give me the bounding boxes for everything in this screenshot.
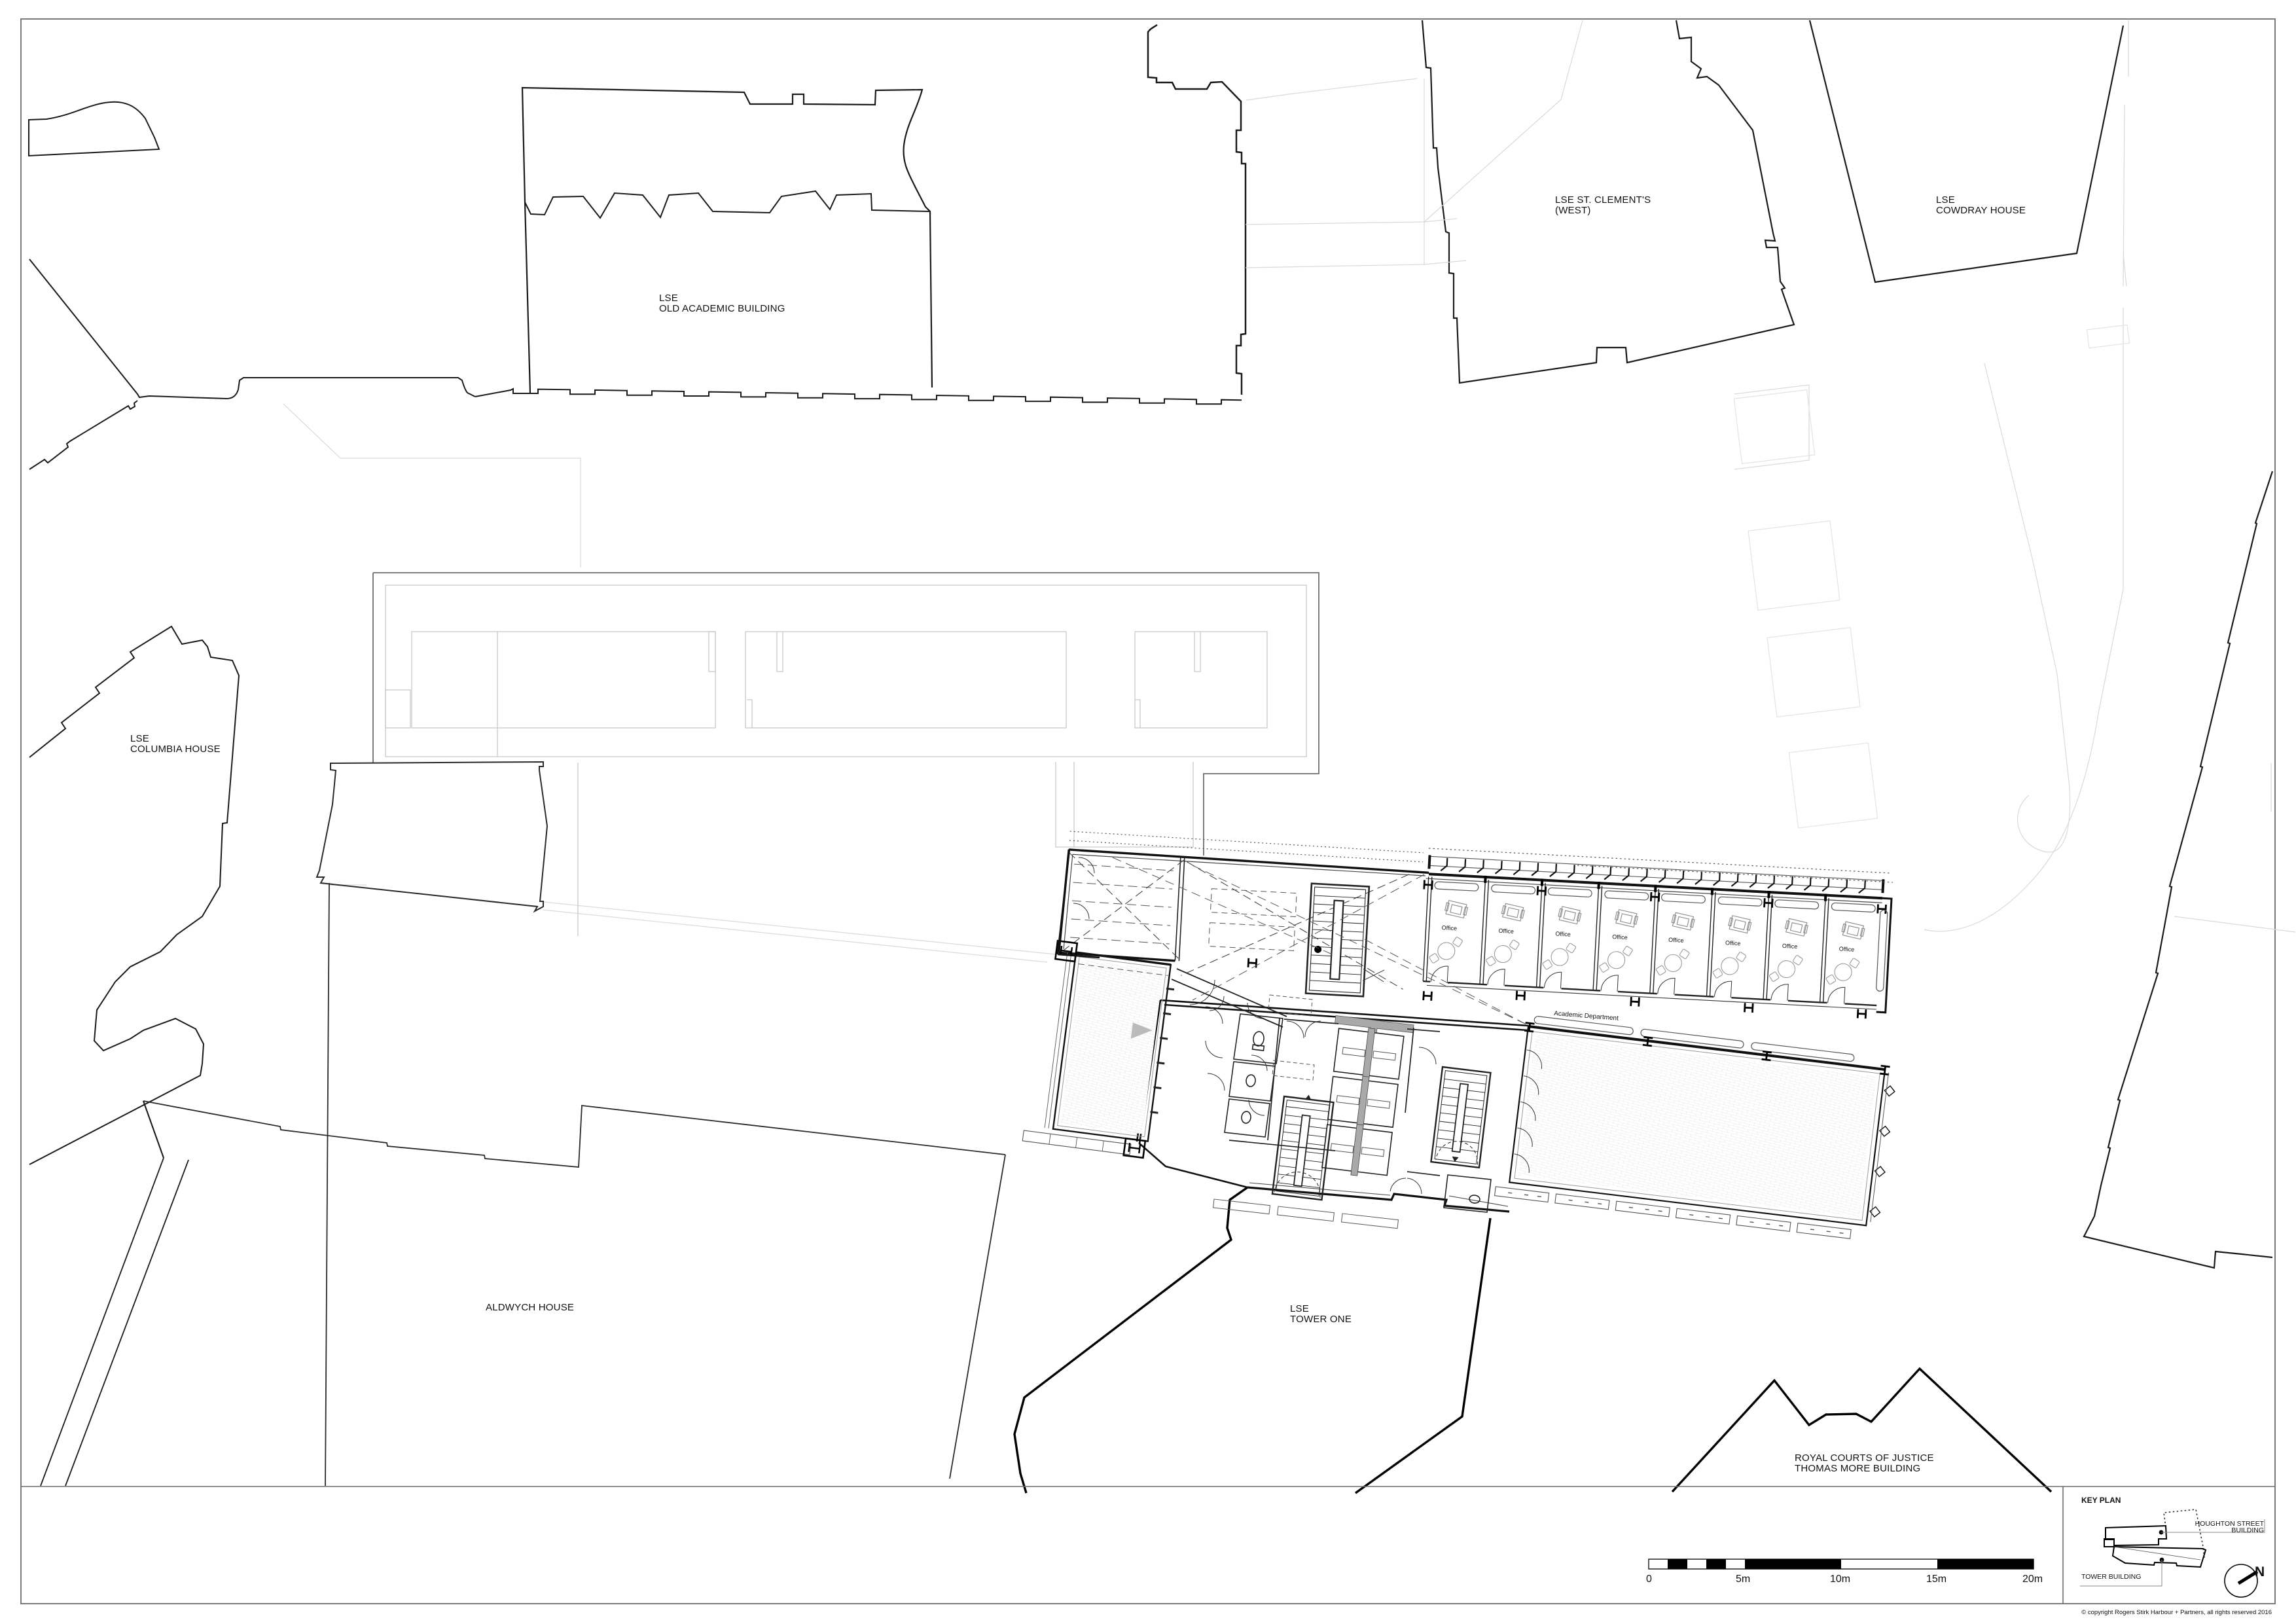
svg-text:LSE: LSE — [1290, 1303, 1309, 1314]
svg-text:Office: Office — [1839, 946, 1855, 953]
svg-text:Office: Office — [1782, 943, 1798, 950]
svg-text:Office: Office — [1498, 928, 1514, 935]
svg-text:LSE: LSE — [130, 733, 149, 744]
svg-text:N: N — [2255, 1564, 2265, 1579]
svg-text:LSE ST. CLEMENT'S: LSE ST. CLEMENT'S — [1555, 194, 1651, 206]
svg-text:COWDRAY HOUSE: COWDRAY HOUSE — [1936, 205, 2026, 216]
svg-text:Office: Office — [1668, 937, 1684, 944]
svg-text:Office: Office — [1555, 930, 1571, 937]
svg-text:20m: 20m — [2022, 1574, 2043, 1585]
svg-text:BUILDING: BUILDING — [2231, 1526, 2264, 1534]
svg-text:OLD ACADEMIC BUILDING: OLD ACADEMIC BUILDING — [659, 303, 785, 314]
svg-text:5m: 5m — [1736, 1574, 1750, 1585]
svg-text:15m: 15m — [1926, 1574, 1946, 1585]
svg-text:THOMAS MORE BUILDING: THOMAS MORE BUILDING — [1795, 1463, 1920, 1474]
svg-text:ALDWYCH HOUSE: ALDWYCH HOUSE — [486, 1302, 574, 1313]
svg-text:TOWER BUILDING: TOWER BUILDING — [2081, 1573, 2141, 1581]
svg-text:Office: Office — [1725, 939, 1741, 946]
svg-text:Office: Office — [1612, 933, 1628, 941]
svg-text:COLUMBIA HOUSE: COLUMBIA HOUSE — [130, 744, 221, 755]
svg-text:10m: 10m — [1830, 1574, 1850, 1585]
svg-text:© copyright Rogers Stirk Har: © copyright Rogers Stirk Harbour + Partn… — [2081, 1609, 2272, 1616]
svg-text:TOWER ONE: TOWER ONE — [1290, 1314, 1352, 1325]
svg-text:ROYAL COURTS OF JUSTICE: ROYAL COURTS OF JUSTICE — [1795, 1452, 1934, 1464]
svg-text:LSE: LSE — [1936, 194, 1955, 206]
svg-text:(WEST): (WEST) — [1555, 205, 1591, 216]
svg-text:KEY PLAN: KEY PLAN — [2081, 1496, 2121, 1505]
svg-text:LSE: LSE — [659, 293, 678, 304]
svg-text:Office: Office — [1441, 924, 1457, 931]
svg-text:0: 0 — [1646, 1574, 1652, 1585]
